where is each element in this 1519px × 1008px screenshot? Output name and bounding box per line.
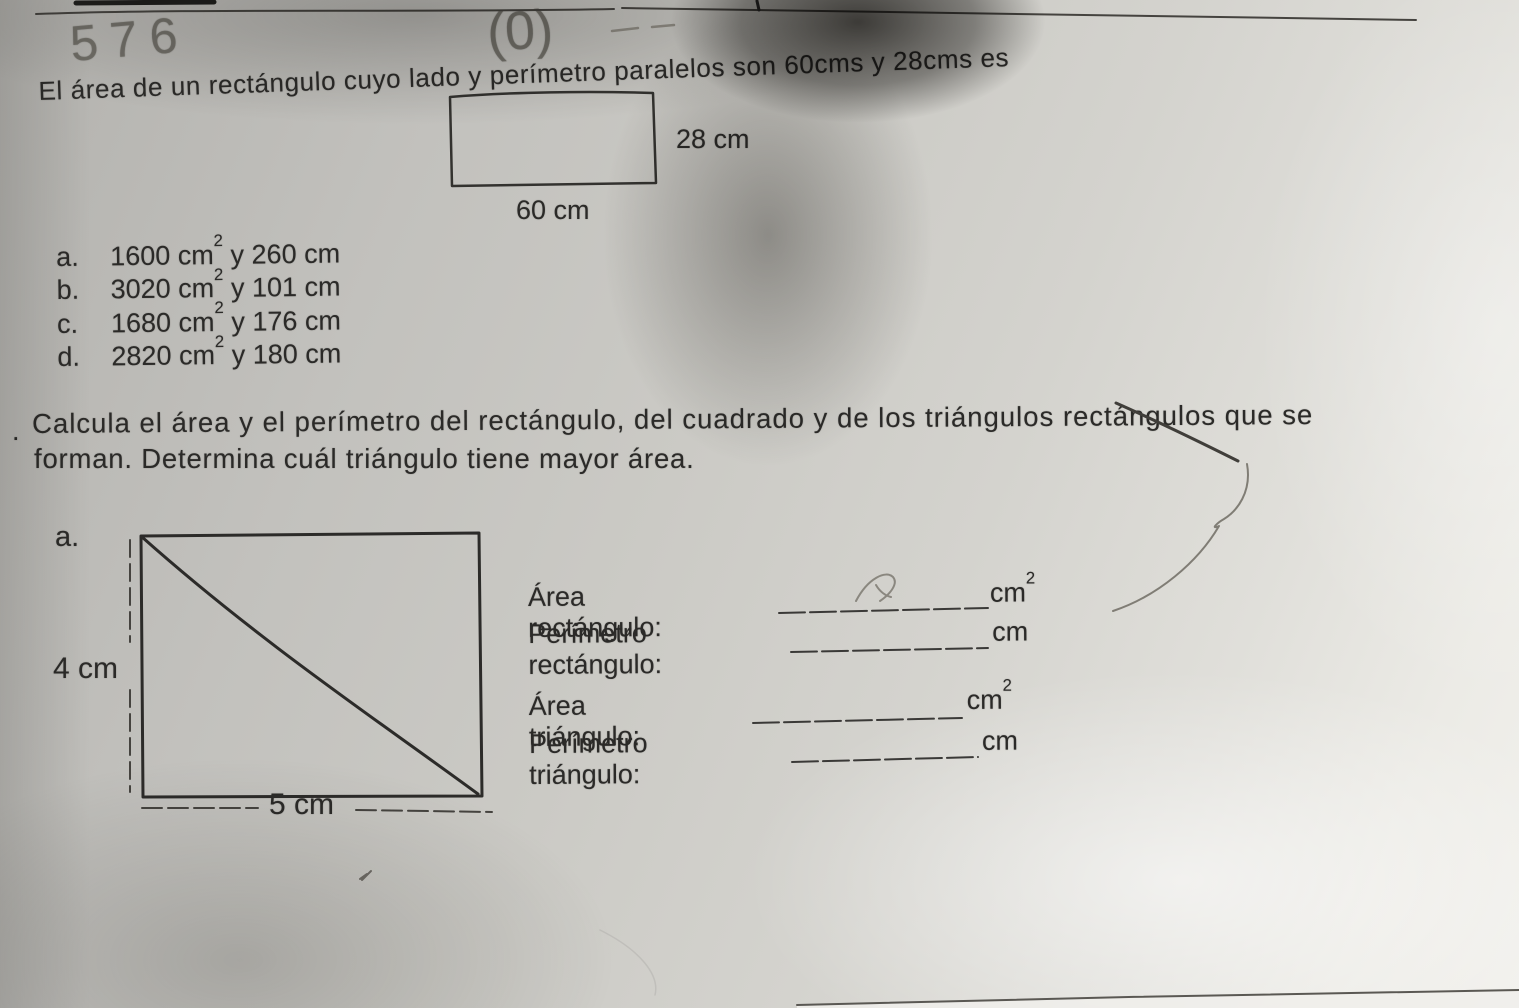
blank-perimetro-triangulo	[792, 757, 978, 762]
paper-crease	[600, 930, 656, 995]
top-rule-tick	[757, 1, 759, 10]
pencil-dashes	[612, 25, 674, 31]
figure2-base-dimension-line	[142, 808, 492, 812]
blank-area-rectangulo	[779, 608, 988, 613]
diagram-layer	[0, 0, 1519, 1008]
pen-stroke-mark	[1116, 403, 1238, 461]
top-rule-thick	[76, 2, 214, 3]
figure1-rectangle	[450, 92, 656, 186]
top-rule-right	[622, 8, 1416, 20]
pencil-arc-mark	[1113, 464, 1248, 611]
paper-edge-highlight	[797, 991, 1519, 1008]
blank-area-triangulo	[753, 718, 962, 723]
top-rule-left	[36, 9, 614, 14]
pencil-squiggle-mark	[856, 575, 895, 601]
worksheet-photo: 576 (0) El área de un rectángulo cuyo la…	[0, 0, 1519, 1008]
small-check-mark	[360, 871, 371, 880]
blank-perimetro-rectangulo	[791, 648, 988, 652]
figure2-rectangle	[141, 533, 482, 797]
figure2-diagonal	[142, 537, 478, 794]
